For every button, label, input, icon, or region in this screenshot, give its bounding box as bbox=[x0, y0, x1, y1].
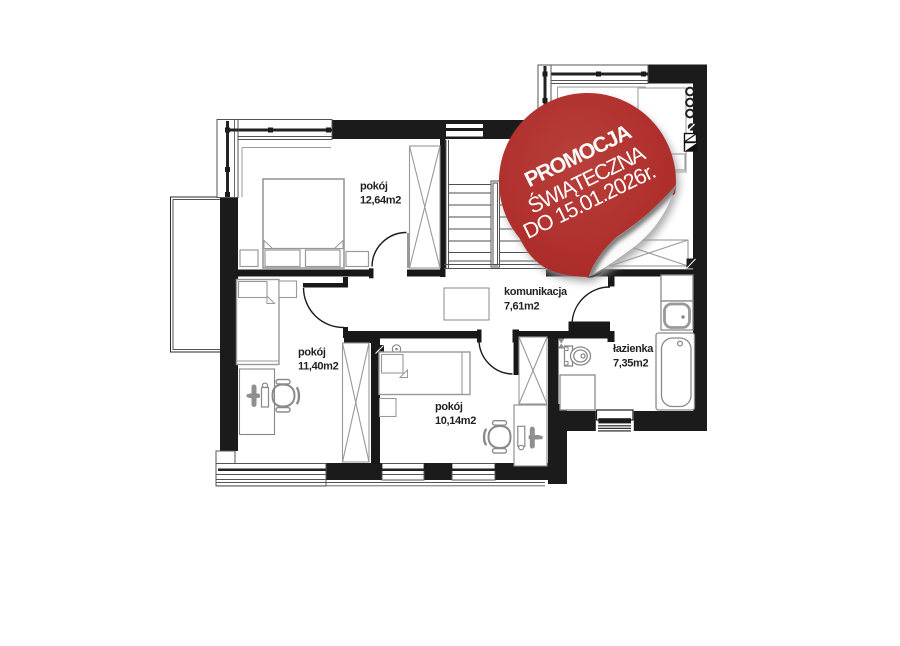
svg-text:pokój: pokój bbox=[360, 181, 388, 193]
svg-text:pokój: pokój bbox=[298, 347, 326, 359]
svg-text:7,35m2: 7,35m2 bbox=[613, 358, 648, 370]
svg-text:komunikacja: komunikacja bbox=[504, 286, 568, 298]
svg-text:12,64m2: 12,64m2 bbox=[360, 195, 401, 207]
svg-text:łazienka: łazienka bbox=[613, 343, 654, 355]
svg-text:10,14m2: 10,14m2 bbox=[435, 415, 476, 427]
svg-text:11,40m2: 11,40m2 bbox=[298, 361, 339, 373]
svg-text:7,61m2: 7,61m2 bbox=[504, 301, 539, 313]
svg-text:pokój: pokój bbox=[435, 401, 463, 413]
